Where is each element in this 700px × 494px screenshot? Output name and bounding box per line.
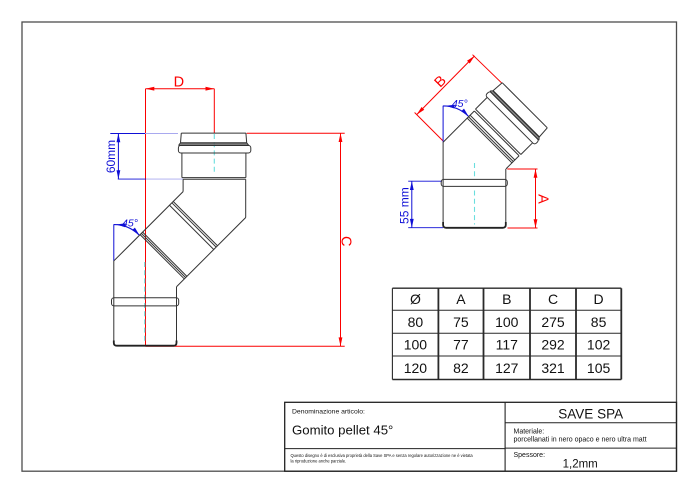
svg-text:Gomito pellet 45°: Gomito pellet 45° — [292, 423, 393, 438]
svg-text:porcellanati in nero opaco e n: porcellanati in nero opaco e nero ultra … — [514, 437, 647, 444]
svg-text:100: 100 — [404, 337, 428, 353]
svg-text:A: A — [456, 291, 466, 307]
svg-text:D: D — [594, 291, 604, 307]
svg-text:Spessore:: Spessore: — [514, 452, 546, 459]
svg-text:117: 117 — [496, 337, 519, 353]
svg-text:55 mm: 55 mm — [398, 187, 412, 224]
svg-text:105: 105 — [587, 360, 611, 376]
svg-text:1,2mm: 1,2mm — [563, 458, 598, 470]
svg-text:D: D — [174, 75, 184, 91]
svg-text:Questo disegno è di esclusiva: Questo disegno è di esclusiva proprietà … — [291, 453, 474, 458]
svg-text:Denominazione articolo:: Denominazione articolo: — [292, 409, 365, 416]
svg-text:275: 275 — [541, 314, 565, 330]
svg-text:321: 321 — [541, 360, 565, 376]
svg-text:85: 85 — [591, 314, 607, 330]
svg-text:75: 75 — [453, 314, 469, 330]
svg-text:80: 80 — [408, 314, 424, 330]
svg-text:100: 100 — [495, 314, 519, 330]
svg-text:Ø: Ø — [410, 291, 421, 307]
svg-text:C: C — [548, 291, 558, 307]
svg-text:82: 82 — [453, 360, 469, 376]
svg-text:B: B — [502, 291, 511, 307]
svg-text:77: 77 — [453, 337, 469, 353]
svg-text:102: 102 — [587, 337, 611, 353]
svg-text:45°: 45° — [452, 98, 468, 110]
svg-text:C: C — [337, 236, 353, 246]
svg-text:292: 292 — [541, 337, 565, 353]
svg-text:60mm: 60mm — [104, 140, 118, 173]
svg-text:SAVE SPA: SAVE SPA — [558, 407, 623, 422]
svg-text:127: 127 — [495, 360, 519, 376]
svg-text:la riproduzione anche parziale: la riproduzione anche parziale. — [291, 459, 347, 464]
svg-text:120: 120 — [404, 360, 428, 376]
svg-text:A: A — [535, 194, 551, 204]
svg-text:45°: 45° — [122, 217, 138, 229]
svg-text:Materiale:: Materiale: — [514, 429, 545, 436]
